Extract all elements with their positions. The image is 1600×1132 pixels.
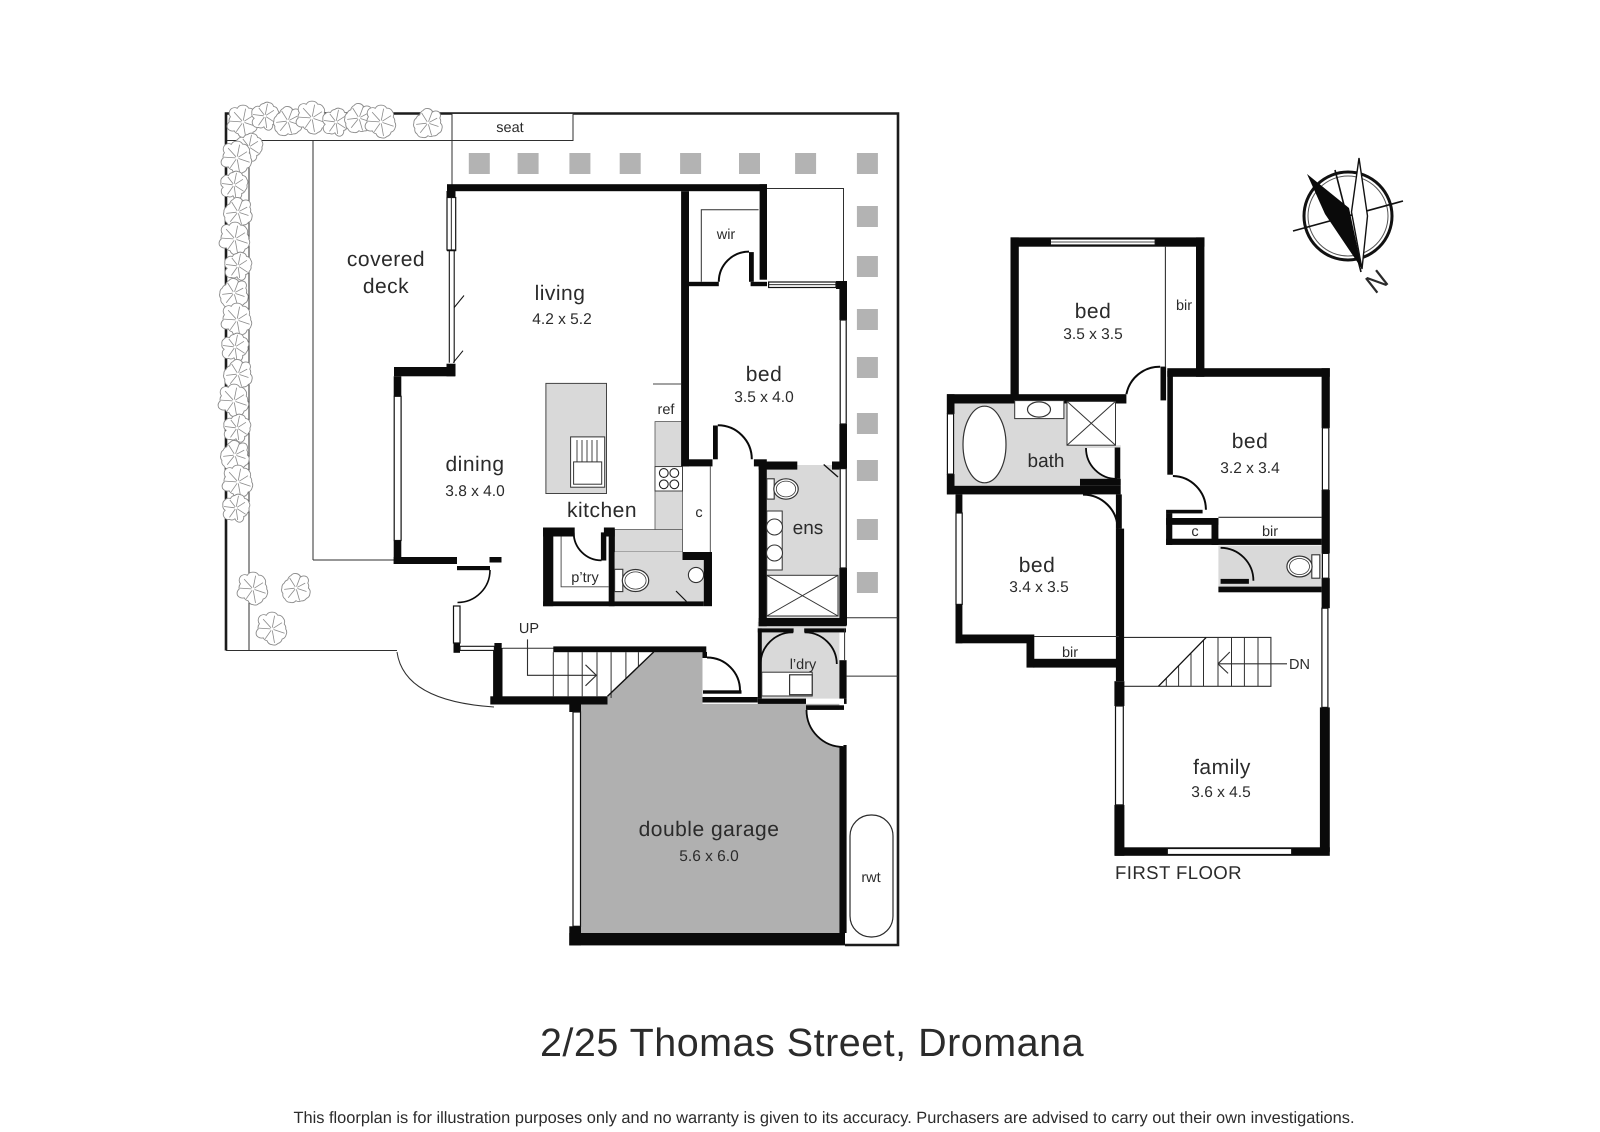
svg-text:dining: dining (445, 453, 504, 476)
svg-text:3.2 x 3.4: 3.2 x 3.4 (1220, 460, 1280, 477)
svg-text:ens: ens (793, 518, 824, 539)
svg-text:bed: bed (1075, 300, 1112, 323)
svg-text:3.5 x 3.5: 3.5 x 3.5 (1063, 326, 1122, 343)
svg-text:wir: wir (716, 227, 736, 243)
svg-text:bir: bir (1262, 524, 1278, 540)
svg-text:ref: ref (658, 402, 676, 418)
svg-text:5.6 x 6.0: 5.6 x 6.0 (679, 848, 739, 865)
svg-text:bed: bed (746, 363, 783, 386)
svg-text:bir: bir (1062, 645, 1078, 661)
svg-text:covered: covered (347, 248, 425, 271)
svg-text:3.5 x 4.0: 3.5 x 4.0 (734, 389, 794, 406)
svg-text:l’dry: l’dry (790, 657, 817, 673)
svg-text:This floorplan is for illustra: This floorplan is for illustration purpo… (293, 1109, 1354, 1127)
svg-text:3.8 x 4.0: 3.8 x 4.0 (445, 483, 505, 500)
svg-text:bath: bath (1028, 451, 1065, 472)
svg-text:bed: bed (1019, 554, 1056, 577)
svg-text:c: c (1191, 524, 1198, 540)
svg-text:3.6 x 4.5: 3.6 x 4.5 (1191, 784, 1250, 801)
svg-text:rwt: rwt (861, 870, 880, 886)
svg-text:seat: seat (496, 120, 523, 136)
svg-text:family: family (1193, 756, 1251, 779)
svg-text:3.4 x 3.5: 3.4 x 3.5 (1009, 579, 1068, 596)
svg-text:living: living (535, 282, 586, 305)
svg-text:DN: DN (1289, 657, 1310, 673)
svg-text:bir: bir (1176, 298, 1192, 314)
svg-text:kitchen: kitchen (567, 499, 637, 522)
svg-text:deck: deck (363, 275, 409, 298)
svg-text:c: c (695, 505, 702, 521)
svg-text:double garage: double garage (639, 818, 780, 841)
svg-text:FIRST FLOOR: FIRST FLOOR (1115, 862, 1242, 883)
svg-text:UP: UP (519, 621, 539, 637)
svg-text:p’try: p’try (571, 570, 599, 586)
svg-text:4.2 x 5.2: 4.2 x 5.2 (532, 311, 591, 328)
svg-text:2/25 Thomas Street, Dromana: 2/25 Thomas Street, Dromana (540, 1021, 1084, 1065)
svg-text:bed: bed (1232, 430, 1269, 453)
